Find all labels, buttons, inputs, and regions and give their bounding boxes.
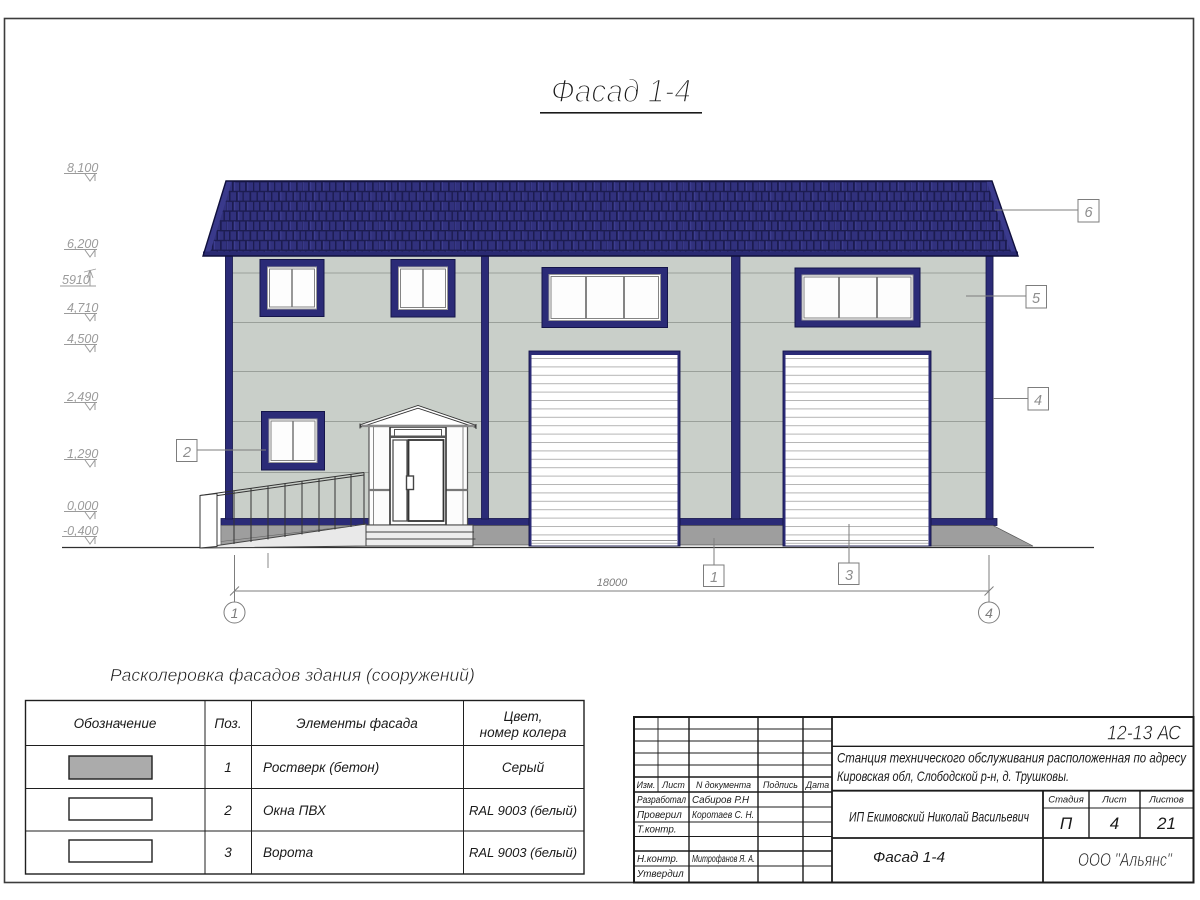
svg-text:Ворота: Ворота [263,845,314,860]
svg-text:18000: 18000 [597,577,628,589]
svg-text:Проверил: Проверил [637,810,682,821]
svg-text:4,710: 4,710 [67,301,98,315]
svg-text:Сабиров Р.Н: Сабиров Р.Н [692,795,750,806]
svg-text:Утвердил: Утвердил [636,869,684,880]
svg-text:номер колера: номер колера [480,725,567,740]
svg-text:8,100: 8,100 [67,161,98,175]
svg-text:5: 5 [1032,291,1041,307]
svg-text:4,500: 4,500 [67,332,98,346]
svg-text:Кировская обл, Слободской р-н,: Кировская обл, Слободской р-н, д. Трушко… [837,769,1069,784]
svg-text:2: 2 [223,803,232,818]
svg-text:1: 1 [224,760,232,775]
svg-text:Митрофанов Я. А.: Митрофанов Я. А. [692,854,755,865]
svg-text:Фасад 1-4: Фасад 1-4 [551,73,691,109]
svg-text:Станция технического обслужива: Станция технического обслуживания распол… [837,751,1187,766]
svg-text:4: 4 [1034,393,1042,409]
svg-text:0,000: 0,000 [67,499,98,513]
svg-text:Подпись: Подпись [763,780,798,790]
svg-text:21: 21 [1156,814,1176,833]
svg-text:Разработал: Разработал [637,795,686,806]
svg-text:RAL 9003 (белый): RAL 9003 (белый) [469,803,577,818]
svg-text:ООО "Альянс": ООО "Альянс" [1078,850,1173,870]
svg-text:6,200: 6,200 [67,237,98,251]
svg-text:Окна ПВХ: Окна ПВХ [263,803,327,818]
svg-text:Т.контр.: Т.контр. [637,825,677,836]
svg-text:Н.контр.: Н.контр. [637,854,678,865]
svg-text:Элементы фасада: Элементы фасада [296,716,418,731]
svg-text:Фасад 1-4: Фасад 1-4 [873,850,945,866]
svg-text:12-13 АС: 12-13 АС [1107,723,1181,745]
svg-text:Дата: Дата [805,780,829,790]
svg-text:Лист: Лист [661,780,685,790]
svg-text:6: 6 [1084,205,1093,221]
svg-text:Ростверк (бетон): Ростверк (бетон) [263,760,379,775]
svg-text:5910: 5910 [62,273,90,287]
svg-text:Обозначение: Обозначение [74,716,157,731]
svg-text:Цвет,: Цвет, [504,709,543,724]
svg-text:3: 3 [845,568,853,584]
svg-text:-0,400: -0,400 [63,524,98,538]
svg-text:1: 1 [710,570,718,586]
svg-text:Расколеровка фасадов здания (с: Расколеровка фасадов здания (сооружений) [110,665,475,685]
svg-text:ИП Екимовский Николай Васильев: ИП Екимовский Николай Васильевич [849,810,1029,825]
svg-text:Изм.: Изм. [637,780,656,790]
svg-text:RAL 9003 (белый): RAL 9003 (белый) [469,845,577,860]
svg-text:Листов: Листов [1148,795,1184,806]
svg-text:Лист: Лист [1101,795,1127,806]
svg-text:4: 4 [1110,814,1119,833]
svg-text:2,490: 2,490 [66,390,98,404]
svg-text:П: П [1060,814,1073,833]
svg-text:Поз.: Поз. [214,716,241,731]
svg-text:4: 4 [985,605,993,621]
svg-text:N документа: N документа [696,780,751,790]
svg-text:Стадия: Стадия [1048,795,1084,806]
svg-text:1: 1 [231,605,239,621]
svg-text:Коротаев С. Н.: Коротаев С. Н. [692,810,754,821]
svg-text:2: 2 [182,445,191,461]
svg-text:3: 3 [224,845,232,860]
svg-text:1,290: 1,290 [67,447,98,461]
svg-text:Серый: Серый [502,760,545,775]
